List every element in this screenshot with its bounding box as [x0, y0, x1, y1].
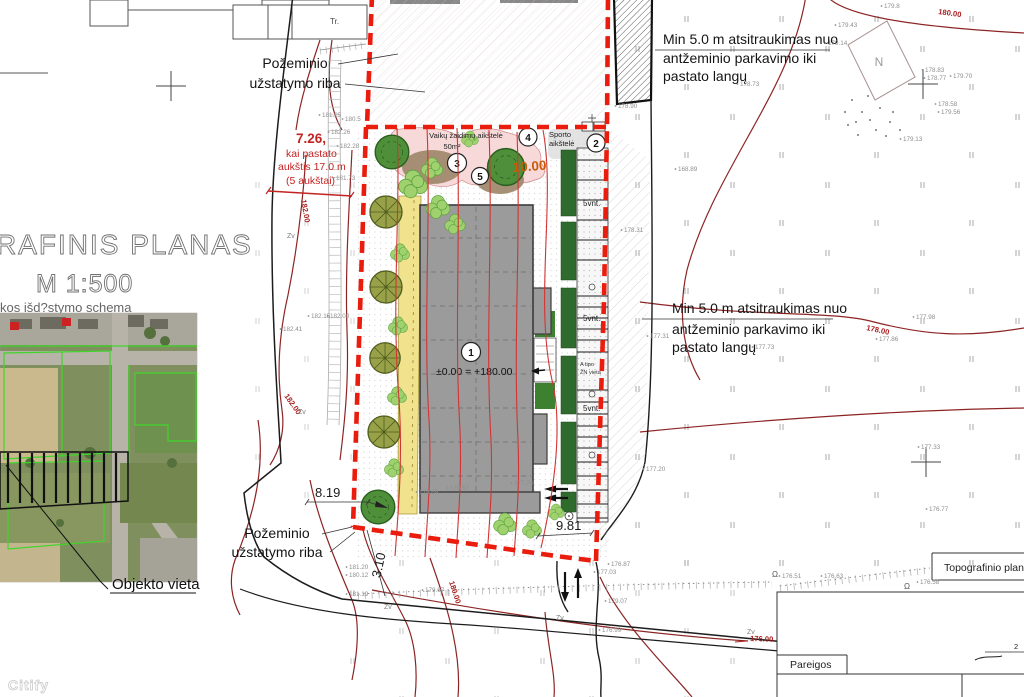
generated-label: 178.58: [938, 101, 958, 108]
generated-label: 180.12: [349, 572, 369, 579]
generated-label: 176.58: [920, 579, 940, 586]
generated-label: 176.99: [602, 627, 622, 634]
svg-text:aukštis 17.0 m: aukštis 17.0 m: [278, 161, 346, 173]
spot-dot: [416, 491, 418, 493]
generated-label: 181.73: [336, 175, 356, 182]
hedge-strip: [561, 150, 576, 512]
spot-dot: [779, 575, 781, 577]
object-location-callout: Objekto vieta: [100, 576, 200, 593]
building-level-label: ±0.00 = +180.00: [436, 366, 513, 378]
entrance-stair: [534, 338, 556, 382]
generated-label: 179.43: [838, 22, 858, 29]
generated-label: 177.86: [879, 336, 899, 343]
spot-dot: [608, 563, 610, 565]
spot-dot: [900, 138, 902, 140]
generated-label: 177.20: [646, 466, 666, 473]
generated-label: 182.41: [283, 326, 303, 333]
spot-dot: [447, 487, 449, 489]
spot-dot: [342, 118, 344, 120]
playground-area-label: 50m²: [443, 142, 461, 151]
spot-dot: [647, 335, 649, 337]
benchmark-symbol: Ω: [904, 582, 910, 591]
spot-dot: [835, 24, 837, 26]
generated-label: 176.51: [782, 573, 802, 580]
spot-dot: [825, 42, 827, 44]
sheet-number: 2: [1014, 642, 1018, 651]
parking-count-label: 5vnt.: [583, 404, 600, 413]
spot-dot: [599, 629, 601, 631]
spot-dot: [511, 482, 513, 484]
spot-dot: [922, 69, 924, 71]
object-location-label: Objekto vieta: [112, 576, 200, 593]
spot-dot: [328, 131, 330, 133]
disabled-stall-label: ŽN vieta: [580, 368, 602, 376]
playground-label: Vaikų žaidimų aikštelė: [429, 131, 503, 140]
generated-label: 179.13: [903, 136, 923, 143]
spot-dot: [346, 574, 348, 576]
svg-text:(5 aukštai): (5 aukštai): [286, 175, 335, 187]
spot-dot: [327, 315, 329, 317]
generated-label: 182.26: [331, 129, 351, 136]
spot-dot: [621, 229, 623, 231]
site-plan-canvas: N Tr.: [0, 0, 1024, 697]
generated-label: 179.67: [425, 587, 445, 594]
svg-text:Min 5.0 m atsitraukimas nuo: Min 5.0 m atsitraukimas nuo: [663, 31, 838, 47]
svg-text:antžeminio parkavimo iki: antžeminio parkavimo iki: [663, 50, 816, 66]
generated-label: 179.70: [953, 73, 973, 80]
table-header: Topografinio plan: [944, 562, 1024, 574]
sport-label: aikštelė: [549, 139, 574, 148]
spot-dot: [346, 566, 348, 568]
generated-label: 179.56: [941, 109, 961, 116]
spot-dot: [422, 589, 424, 591]
parking-area: 5vnt. 5vnt. 5vnt. A tipo ŽN vieta: [577, 148, 608, 522]
generated-label: Zv: [384, 604, 392, 611]
inset-marker: [62, 318, 71, 326]
page-title: RAFINIS PLANAS: [0, 229, 253, 260]
svg-text:pastato langų: pastato langų: [672, 339, 756, 355]
generated-label: 179.14: [828, 40, 848, 47]
generated-label: Zv: [747, 629, 755, 636]
spot-dot: [337, 145, 339, 147]
parking-count-label: 5vnt.: [583, 199, 600, 208]
spot-dot: [935, 103, 937, 105]
generated-label: Zv: [287, 233, 295, 240]
spot-dot: [319, 114, 321, 116]
svg-text:užstatymo riba: užstatymo riba: [249, 75, 340, 91]
spot-dot: [333, 177, 335, 179]
generated-label: 178.77: [927, 75, 947, 82]
generated-label: 180.5: [345, 116, 361, 123]
spot-dot: [643, 468, 645, 470]
generated-label: 178.90: [618, 103, 638, 110]
generated-label: 178.31: [624, 227, 644, 234]
generated-label: 179.07: [608, 598, 628, 605]
generated-label: 177.73: [755, 344, 775, 351]
dimension-10: 10.00: [512, 158, 547, 175]
generated-label: 176.77: [929, 506, 949, 513]
generated-label: 177.74: [514, 480, 534, 487]
spot-dot: [913, 316, 915, 318]
spot-dot: [675, 168, 677, 170]
generated-label: 168.89: [678, 166, 698, 173]
generated-label: 177.03: [597, 569, 617, 576]
disabled-stall-label: A tipo: [580, 362, 594, 368]
inset-marker: [10, 322, 19, 330]
generated-label: 178.73: [740, 81, 760, 88]
benchmark-symbol: Ω: [772, 570, 778, 579]
spot-dot: [280, 328, 282, 330]
marker-5: 5: [477, 172, 483, 183]
spot-dot: [821, 575, 823, 577]
sport-label: Sporto: [549, 130, 571, 139]
lawn-square: [535, 383, 555, 409]
spot-dot: [917, 581, 919, 583]
tr-building-label: Tr.: [330, 17, 339, 26]
generated-label: 181.20: [349, 564, 369, 571]
generated-label: 177.98: [916, 314, 936, 321]
plan-drawing: N Tr.: [0, 0, 1024, 697]
generated-label: 182.00: [330, 313, 350, 320]
svg-text:antžeminio parkavimo iki: antžeminio parkavimo iki: [672, 321, 825, 337]
generated-label: 181.19: [349, 591, 369, 598]
svg-text:užstatymo riba: užstatymo riba: [231, 544, 322, 560]
spot-dot: [924, 77, 926, 79]
spot-dot: [308, 315, 310, 317]
aerial-inset: [0, 313, 197, 582]
marker-3: 3: [454, 159, 460, 170]
generated-label: 181.25: [322, 112, 342, 119]
svg-text:Požeminio: Požeminio: [244, 525, 310, 541]
generated-label: 177.33: [921, 444, 941, 451]
table-role-cell: Pareigos: [790, 659, 831, 671]
spot-dot: [881, 5, 883, 7]
svg-text:Min 5.0 m atsitraukimas nuo: Min 5.0 m atsitraukimas nuo: [672, 300, 847, 316]
parking-count-label: 5vnt.: [583, 314, 600, 323]
generated-label: 177.31: [650, 333, 670, 340]
spot-dot: [346, 593, 348, 595]
spot-dot: [950, 75, 952, 77]
svg-text:pastato langų: pastato langų: [663, 68, 747, 84]
marker-4: 4: [525, 133, 531, 144]
generated-label: Zv: [556, 615, 564, 622]
generated-label: Zv: [298, 409, 306, 416]
marker-1: 1: [468, 348, 474, 359]
generated-label: 182.28: [340, 143, 360, 150]
spot-dot: [752, 346, 754, 348]
watermark: Citify: [8, 677, 49, 693]
svg-text:kai pastato: kai pastato: [286, 148, 337, 160]
generated-label: 179.8: [884, 3, 900, 10]
spot-dot: [918, 446, 920, 448]
generated-label: 176.87: [611, 561, 631, 568]
spot-dot: [737, 83, 739, 85]
north-label: N: [875, 55, 884, 69]
spot-dot: [938, 111, 940, 113]
spot-dot: [615, 105, 617, 107]
spot-dot: [605, 600, 607, 602]
marker-2: 2: [593, 139, 599, 150]
generated-label: 178.57: [450, 485, 470, 492]
dimension-819: 8.19: [315, 485, 340, 500]
generated-label: 179.69: [419, 489, 439, 496]
spot-dot: [926, 508, 928, 510]
upper-reserve-area: [367, 0, 608, 127]
spot-dot: [876, 338, 878, 340]
svg-text:7.26,: 7.26,: [296, 131, 326, 146]
generated-label: 176.63: [824, 573, 844, 580]
scale-label: M 1:500: [36, 270, 133, 298]
generated-label: 178.83: [925, 67, 945, 74]
svg-text:Požeminio: Požeminio: [262, 55, 328, 71]
spot-dot: [594, 571, 596, 573]
